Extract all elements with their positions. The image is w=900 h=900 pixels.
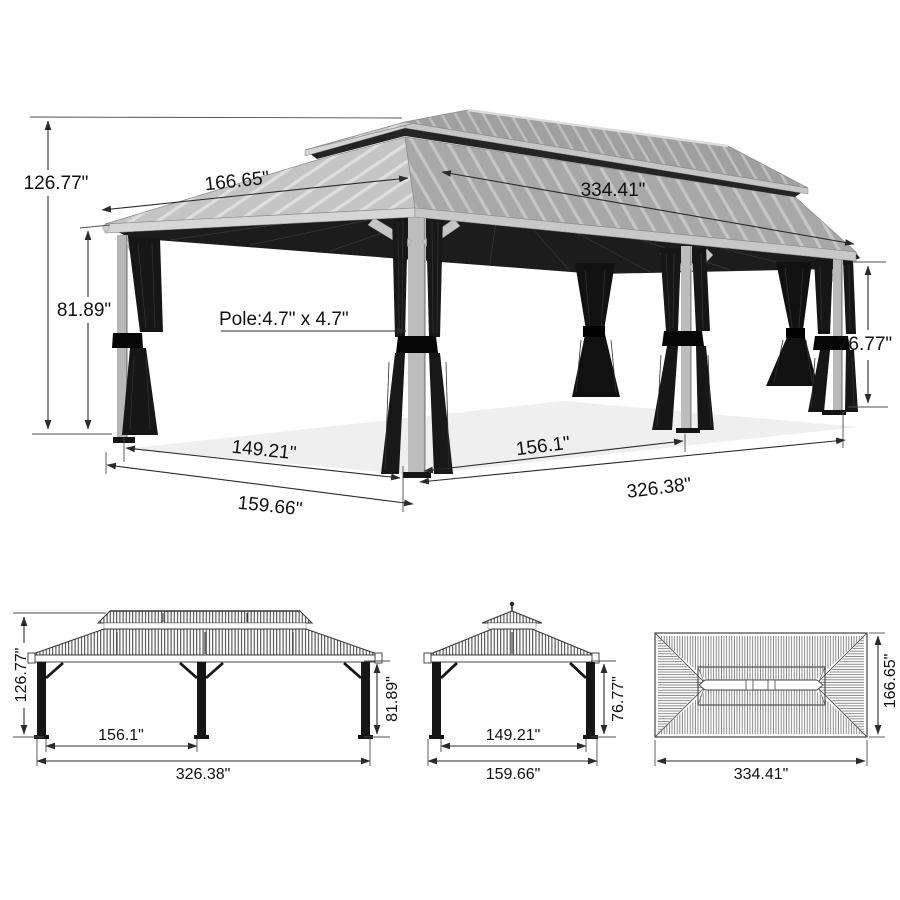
dim-label-fe-outer-span: 326.38" bbox=[176, 766, 231, 783]
curtain-tie bbox=[112, 333, 143, 348]
roof-vent bbox=[104, 623, 306, 629]
diagram-svg: 126.77" 81.89" 166.65" 334.41" Pole:4.7"… bbox=[0, 0, 900, 900]
dim-se-post-height: 76.77" bbox=[591, 661, 627, 737]
dim-label-pole-size: Pole:4.7" x 4.7" bbox=[219, 309, 349, 330]
curtain-tie bbox=[396, 336, 438, 353]
eave-fascia bbox=[30, 655, 380, 662]
ridge-beam bbox=[699, 680, 823, 690]
dim-eave-height: 81.89" bbox=[57, 225, 111, 429]
curtain bbox=[392, 215, 408, 337]
ridge-connector bbox=[768, 680, 775, 690]
post-back-middle bbox=[572, 263, 620, 397]
dim-label-roof-length: 334.41" bbox=[581, 180, 646, 201]
dim-tp-roof-length: 334.41" bbox=[655, 740, 867, 783]
ridge-connector bbox=[746, 680, 753, 690]
dim-se-inner-span: 149.21" bbox=[441, 727, 586, 752]
roof-vent bbox=[488, 623, 536, 629]
curtain bbox=[660, 248, 681, 331]
side-elevation-view: 76.77" 149.21" 159.66" bbox=[424, 602, 627, 783]
dim-label-tp-roof-width: 166.65" bbox=[882, 654, 899, 709]
upper-roof bbox=[482, 611, 542, 623]
dim-label-total-height: 126.77" bbox=[24, 173, 89, 194]
dim-pole-size: Pole:4.7" x 4.7" bbox=[219, 309, 406, 331]
post-front-middle bbox=[652, 246, 714, 433]
post-back-right bbox=[766, 262, 818, 386]
curtain bbox=[814, 259, 833, 334]
front-elevation-view: 126.77" 81.89" 156.1" 326.38" bbox=[13, 611, 401, 783]
post-back-left bbox=[112, 235, 163, 443]
dim-fe-total-height: 126.77" bbox=[13, 613, 106, 737]
post-center bbox=[197, 662, 206, 735]
perspective-view: 126.77" 81.89" 166.65" 334.41" Pole:4.7"… bbox=[24, 110, 893, 520]
post-base bbox=[676, 428, 700, 433]
upper-roof bbox=[98, 611, 312, 623]
dim-label-post-height: 76.77" bbox=[838, 334, 892, 355]
dim-label-tp-roof-length: 334.41" bbox=[734, 766, 789, 783]
post-base bbox=[822, 410, 846, 415]
eave-fascia bbox=[426, 655, 597, 662]
dim-label-fe-inner-span: 156.1" bbox=[98, 727, 144, 744]
dim-tp-roof-width: 166.65" bbox=[869, 633, 899, 737]
post-left bbox=[37, 662, 46, 735]
curtain bbox=[696, 346, 714, 430]
dim-label-fe-eave-height: 81.89" bbox=[384, 676, 401, 722]
dim-label-eave-height: 81.89" bbox=[57, 300, 111, 321]
top-plan-view: 334.41" 166.65" bbox=[655, 633, 899, 783]
dim-fe-inner-span: 156.1" bbox=[46, 727, 197, 752]
dim-label-se-post-height: 76.77" bbox=[610, 676, 627, 722]
dim-label-se-inner-span: 149.21" bbox=[486, 727, 541, 744]
curtain-tie bbox=[583, 326, 605, 337]
dim-label-fe-total-height: 126.77" bbox=[13, 648, 30, 703]
post-left bbox=[432, 662, 441, 735]
post-base bbox=[403, 472, 431, 478]
dim-label-side-outer-span: 159.66" bbox=[237, 493, 304, 521]
dim-label-se-outer-span: 159.66" bbox=[486, 766, 541, 783]
curtain bbox=[128, 237, 163, 332]
curtain bbox=[426, 215, 443, 337]
curtain-tie bbox=[662, 331, 704, 346]
curtain-tie bbox=[786, 328, 805, 338]
gazebo-dimension-diagram: 126.77" 81.89" 166.65" 334.41" Pole:4.7"… bbox=[0, 0, 900, 900]
post-right bbox=[586, 662, 595, 735]
dim-label-front-outer-span: 326.38" bbox=[626, 474, 693, 503]
curtain bbox=[845, 350, 858, 412]
post-right bbox=[361, 662, 370, 735]
roof-finial bbox=[510, 602, 514, 606]
